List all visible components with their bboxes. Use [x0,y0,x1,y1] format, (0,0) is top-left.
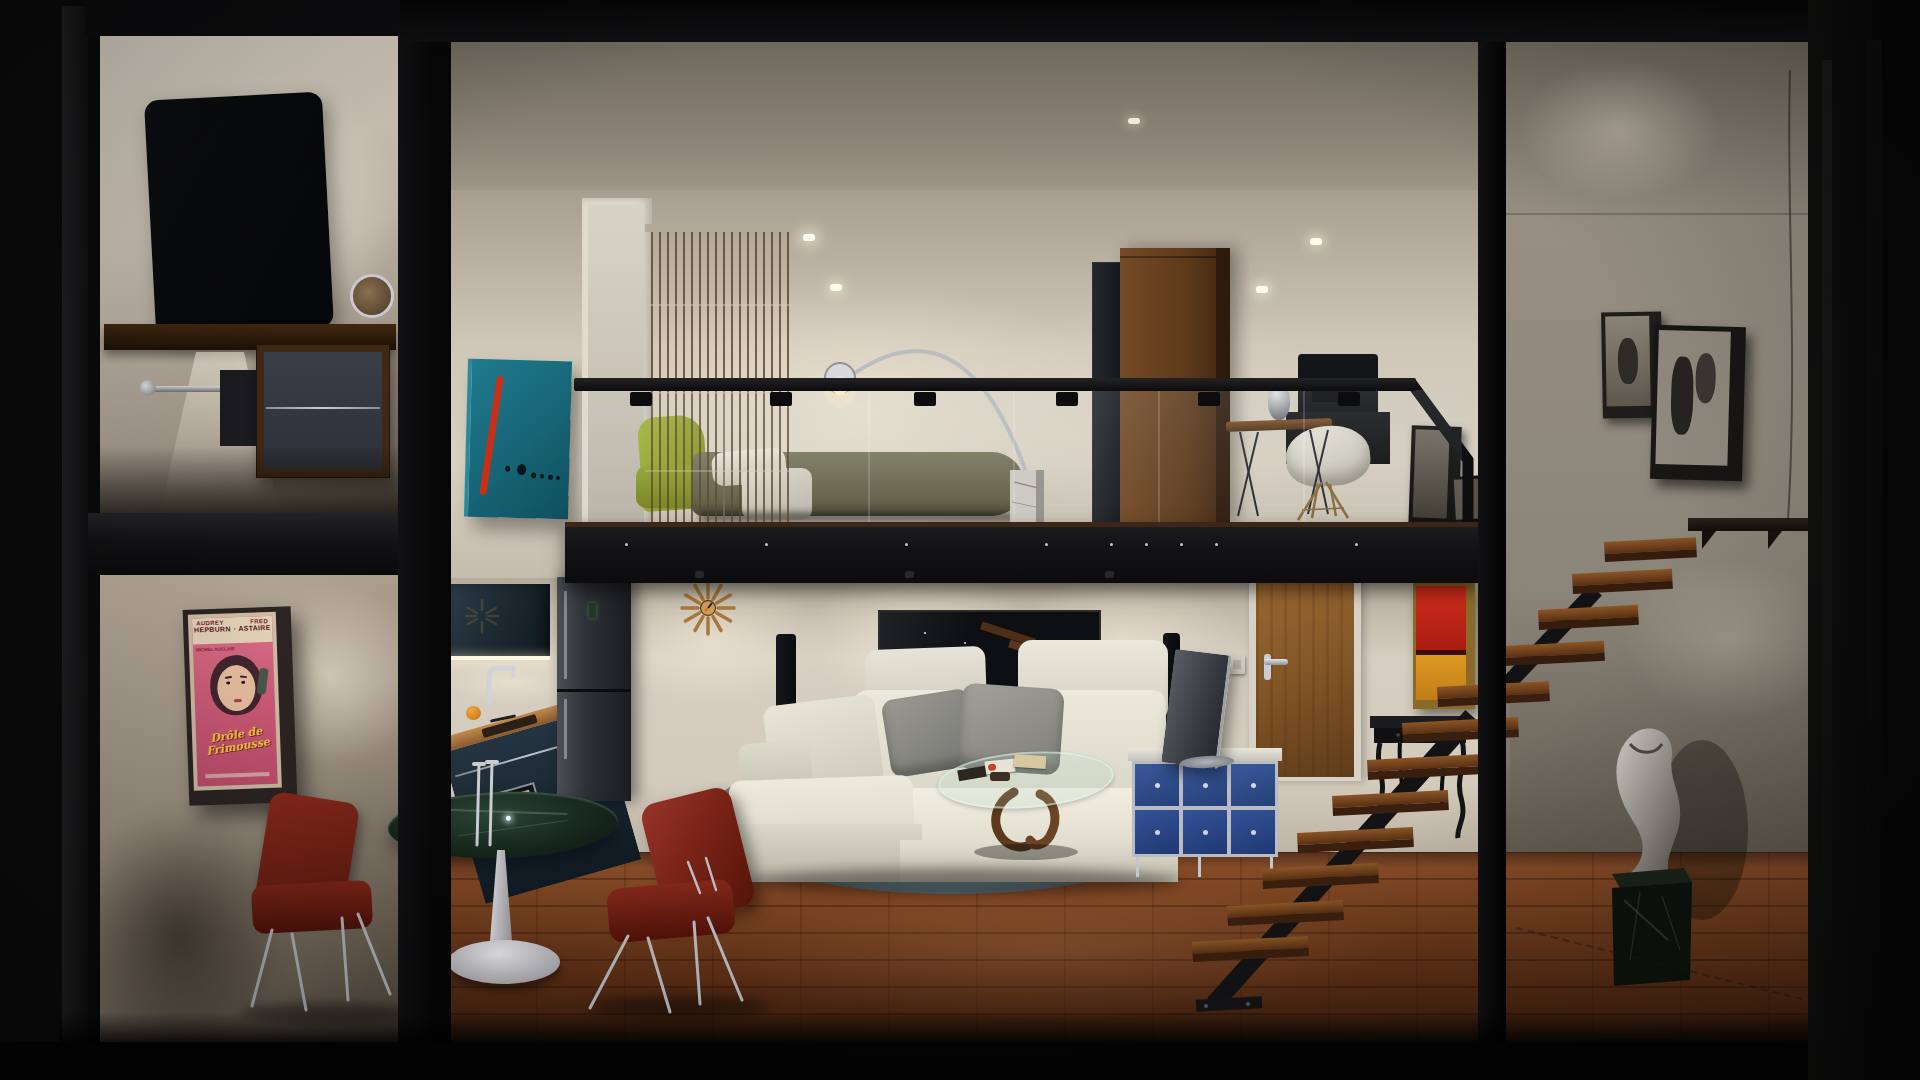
soffit-downlight [1105,571,1114,578]
magazine-cover-art [988,763,997,771]
window-bay-frame-left [60,6,88,1046]
drawer-knob [1203,783,1208,788]
painting-dot [540,474,544,479]
frame-left-edge [0,0,62,1080]
red-orange-painting [1413,583,1475,709]
door-handle [1264,654,1271,680]
poster-mat: AUDREY FRED HEPBURN · ASTAIRE MICHEL AUC… [188,612,282,791]
railing-clamp [914,392,936,406]
fridge-door-split [557,689,631,692]
glass-joint [723,390,725,526]
railing-clamp [1198,392,1220,406]
sideboard-leg [1198,857,1201,877]
rod-wall-mount [140,380,156,396]
string-curtain-header [645,224,793,232]
glass-joint [868,390,870,526]
drawer-knob [1251,783,1256,788]
drawer-knob [1203,830,1208,835]
photo-figure [1670,356,1694,435]
sideboard-leg [1136,857,1139,877]
fridge-display [589,603,596,618]
wardrobe-seam [1120,256,1230,258]
teal-abstract-painting [464,359,572,520]
curtain-connector [645,304,793,306]
orange-fruit [466,706,481,720]
drawer-knob [1251,830,1256,835]
glass-joint [1158,390,1160,526]
beam-bolt [765,543,768,546]
painting-dot [548,475,553,480]
photo-mat [1655,330,1730,466]
beam-bolt [905,543,908,546]
poster-top-band: AUDREY FRED HEPBURN · ASTAIRE [192,616,273,645]
leaning-dark-panel [144,92,334,337]
red-chair-left-seat [251,880,373,934]
magazine [1014,754,1047,769]
wood-framed-cabinet [256,344,390,478]
mezzanine-floor-beam [565,522,1480,583]
marble-vein [459,820,568,836]
beam-bolt [1045,543,1048,546]
glass-joint [1013,390,1015,526]
poster-art: AUDREY FRED HEPBURN · ASTAIRE MICHEL AUC… [192,616,278,787]
dark-zone-reflection [1822,60,1832,960]
photo-image [1605,316,1651,407]
poster-dancer-figure [257,668,269,695]
beam-bolt [1145,543,1148,546]
painting-red-field [1416,586,1466,650]
glass-balustrade [578,390,1462,528]
top-left-room [100,34,400,516]
lower-left-room: AUDREY FRED HEPBURN · ASTAIRE MICHEL AUC… [100,575,400,1042]
table-sparkle [506,816,511,821]
ceiling-spot-light [1128,118,1140,124]
red-chair-right-seat [606,879,736,944]
painting-orange-field [1416,655,1466,700]
dark-drawer-box [220,370,256,446]
poster-name-hepburn: HEPBURN [194,625,231,633]
tray-items [990,772,1010,781]
photo-figure [1695,353,1716,404]
top-left-window-frame [85,0,400,36]
door-lever [1264,659,1288,665]
painting-dot [531,472,536,478]
sofa-front-face [728,824,922,882]
railing-clamp [630,392,652,406]
poster-lips [234,699,242,702]
painting-dot [556,476,560,480]
under-cabinet-led [448,656,550,660]
beam-bolt [1215,543,1218,546]
drawer-knob [1155,783,1160,788]
beam-bolt [1110,543,1113,546]
ceiling-spot-light [803,234,815,241]
poster-name-astaire: · ASTAIRE [234,624,271,632]
poster-title-script: Drôle de Frimousse [199,723,276,758]
loft-cross-section-render: AUDREY FRED HEPBURN · ASTAIRE MICHEL AUC… [0,0,1920,1080]
left-rooms-divider-beam [85,513,400,575]
fridge-handle [564,699,567,759]
refrigerator [557,577,631,801]
railing-clamp [1056,392,1078,406]
dark-zone-reflection [1866,40,1882,1000]
beam-bolt [625,543,628,546]
city-light [924,632,926,634]
ceiling-spot-light [1310,238,1322,245]
bw-photo-large [1650,325,1746,481]
railing-top-rail [574,378,1416,391]
cabinet-handle-line [266,407,380,409]
glass-joint [1303,390,1305,526]
beam-bolt [1355,543,1358,546]
entry-door [1256,558,1354,777]
railing-clamp [770,392,792,406]
city-light [964,642,966,644]
soffit-downlight [905,571,914,578]
red-chair-left-shadow [240,1003,400,1023]
soffit-downlight [695,571,704,578]
tulip-table-base [448,940,560,984]
poster-credit-strip [205,772,269,778]
structural-column-left [398,6,451,1045]
frame-right-dark-zone [1808,0,1920,1080]
frame-bottom [0,1042,1920,1080]
round-chrome-mirror [350,274,394,318]
kitchen-upper-cabinet [448,584,550,658]
switch-rocker [1233,660,1241,669]
structural-column-right [1478,30,1506,1044]
poster-credit: MICHEL AUCLAIR [196,646,235,652]
ceiling-spot-light [830,284,842,291]
painting-dot [517,464,526,475]
painting-red-stroke [479,375,504,495]
wall-shelf [1688,518,1810,531]
sideboard-leg [1270,857,1273,877]
ceiling-spot-light [1256,286,1268,293]
fridge-handle [564,591,567,679]
drawer-knob [1155,830,1160,835]
frame-top [400,0,1920,42]
railing-clamp [1338,392,1360,406]
beam-bolt [1180,543,1183,546]
photo-figure [1618,338,1639,384]
funny-face-poster: AUDREY FRED HEPBURN · ASTAIRE MICHEL AUC… [183,606,298,806]
sideboard-body [1132,761,1278,857]
painting-dot [505,466,510,472]
cabinet-front [264,352,382,470]
